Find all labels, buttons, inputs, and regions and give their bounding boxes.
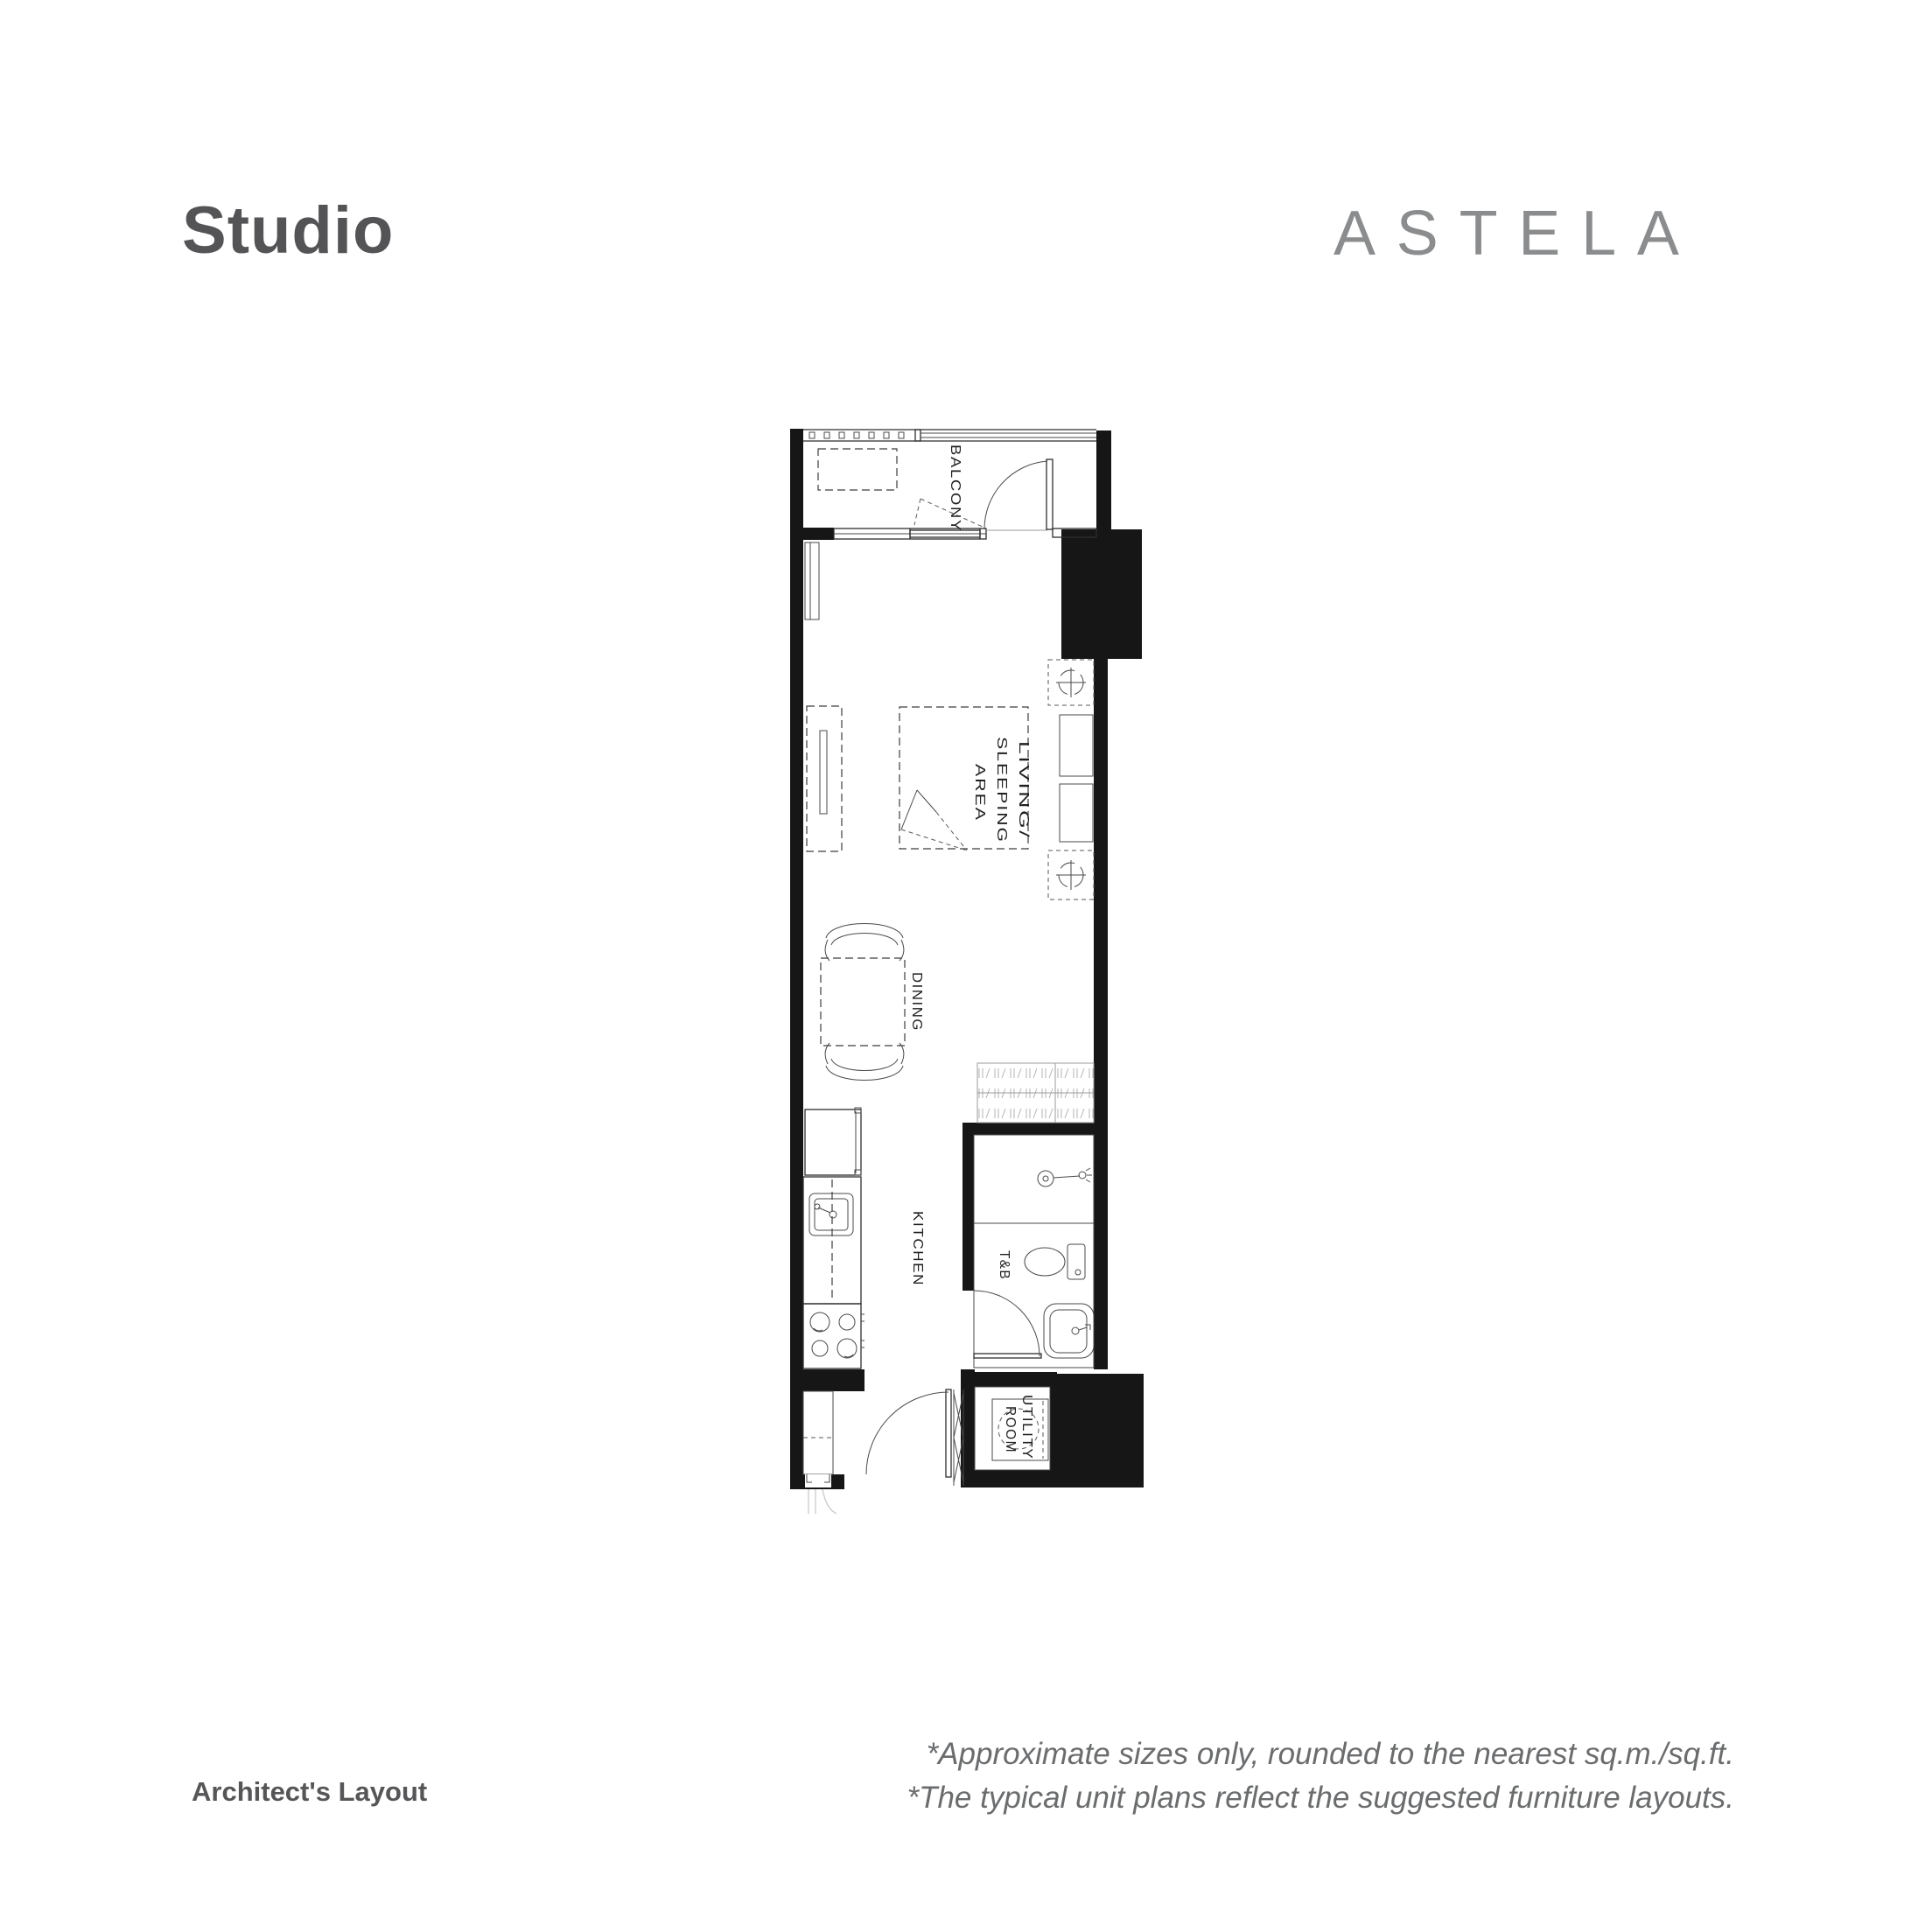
footnote-line: *The typical unit plans reflect the sugg… [906,1776,1734,1820]
dining-label: DINING [909,972,924,1032]
balcony-railing [803,430,1096,441]
footnotes: *Approximate sizes only, rounded to the … [906,1732,1734,1819]
brand-logo: ASTELA [1333,198,1700,269]
ac-ledge [805,542,819,619]
walls [790,429,1144,1489]
floor-plan-page: Studio ASTELA [0,0,1932,1932]
ceiling-fixture [1048,660,1094,705]
floor-plan: BALCONY LIVING/ S [770,420,1146,1514]
balcony-door [984,459,1096,537]
page-title: Studio [182,192,394,269]
dining-table [821,924,905,1081]
lavatory-sink [1044,1304,1094,1358]
refrigerator [805,1108,861,1175]
kitchen-sink [809,1193,853,1235]
kitchen-label: KITCHEN [910,1211,925,1286]
toilet-bath [974,1135,1094,1368]
overhead-cabinets [977,1063,1094,1123]
stove [803,1304,864,1368]
service-ledge [803,1391,836,1514]
tv-console [807,706,842,851]
shower-head [1038,1168,1092,1186]
ceiling-fixture [1048,850,1094,899]
architects-layout-label: Architect's Layout [192,1776,427,1808]
tb-label: T&B [997,1250,1011,1280]
entry-door [866,1389,963,1486]
living-sleeping-label: LIVING/ SLEEPING AREA [972,737,1031,849]
wardrobe [1060,715,1093,842]
balcony-label: BALCONY [948,444,962,532]
toilet [1025,1244,1085,1279]
utility-label: UTILITY ROOM [1003,1395,1034,1465]
tb-door [974,1291,1041,1358]
balcony-planter [818,449,897,490]
footnote-line: *Approximate sizes only, rounded to the … [906,1732,1734,1776]
